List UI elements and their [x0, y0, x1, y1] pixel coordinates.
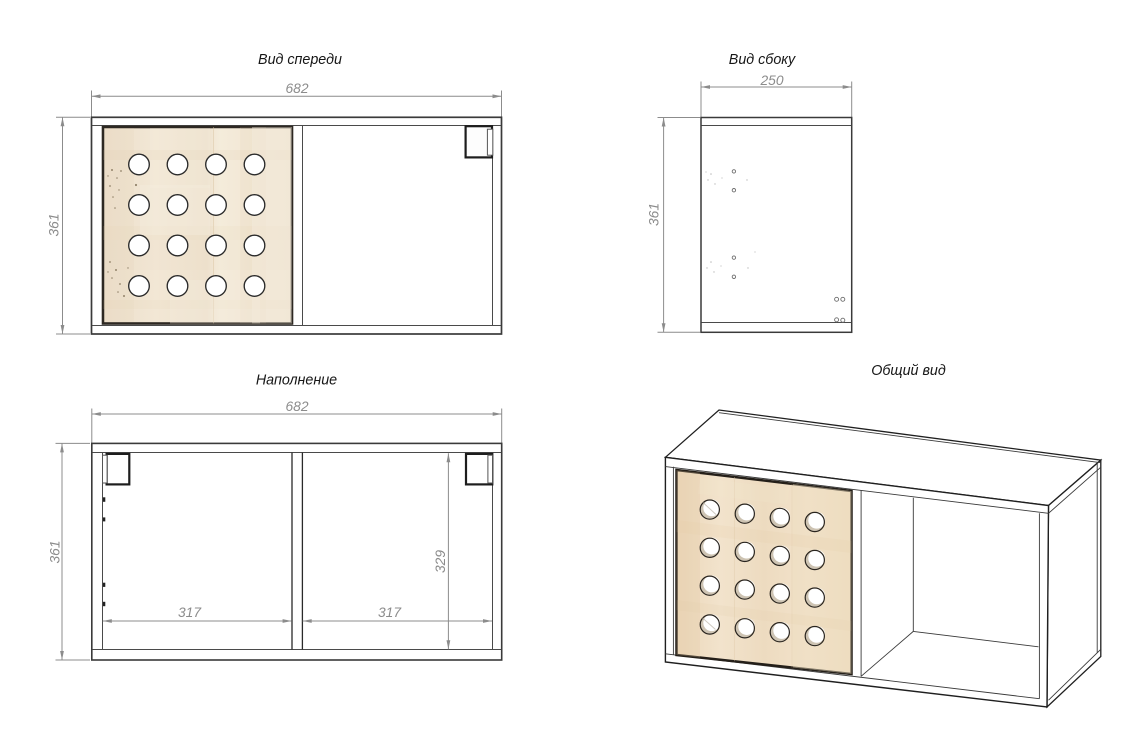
svg-text:361: 361 — [646, 203, 661, 226]
svg-text:Наполнение: Наполнение — [256, 373, 337, 389]
svg-text:Вид спереди: Вид спереди — [258, 52, 342, 68]
svg-text:361: 361 — [48, 540, 63, 563]
svg-text:329: 329 — [433, 550, 448, 573]
svg-text:Общий вид: Общий вид — [871, 363, 946, 379]
svg-text:317: 317 — [178, 605, 202, 620]
svg-text:Вид сбоку: Вид сбоку — [729, 52, 796, 68]
svg-text:682: 682 — [285, 399, 308, 414]
svg-text:682: 682 — [285, 81, 308, 96]
svg-text:250: 250 — [759, 73, 783, 88]
svg-text:317: 317 — [378, 605, 402, 620]
svg-text:361: 361 — [47, 213, 62, 236]
